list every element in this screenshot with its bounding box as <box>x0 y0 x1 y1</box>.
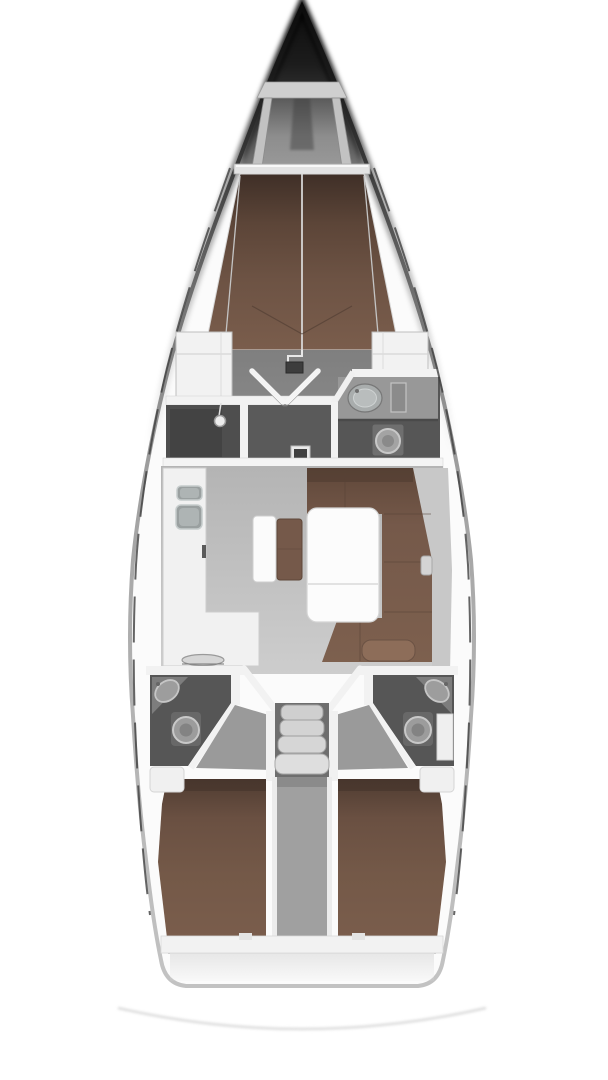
shower-room-inner-shadow <box>170 409 222 457</box>
forward-head <box>331 369 440 462</box>
shower-wall <box>240 403 248 462</box>
galley-sink-large-basin <box>179 508 199 526</box>
starboard-aft-cabin-berth <box>338 779 446 938</box>
port-aft-cabin-berth <box>158 779 266 938</box>
forepeak-center-shadow <box>290 98 314 150</box>
starboard-aft-head-wall-top <box>359 666 458 675</box>
starboard-aft-head-faucet <box>444 682 448 686</box>
settee-pillow <box>362 640 415 661</box>
center-seat <box>253 516 276 582</box>
mast-step <box>286 362 303 373</box>
companionway-steps <box>266 703 338 783</box>
starboard-aft-head-locker <box>437 714 453 760</box>
starboard-aft-head-wall-left <box>364 672 373 705</box>
settee-back-shadow <box>307 468 413 482</box>
step-tread-3 <box>278 736 326 753</box>
divider-edge-starboard <box>327 777 332 939</box>
bow-anchor-locker <box>257 82 347 98</box>
transom-notch-port <box>239 933 252 940</box>
salon-table <box>307 508 379 622</box>
divider-top-shade <box>277 777 327 787</box>
forward-head-faucet <box>355 389 359 393</box>
transom-notch-starboard <box>352 933 365 940</box>
port-aft-head <box>146 666 277 770</box>
deck-locker <box>421 556 432 575</box>
yacht-floorplan-canvas <box>0 0 608 1080</box>
stern-shading <box>170 953 434 981</box>
starboard-aft-toilet-bowl <box>412 724 425 737</box>
shower-head <box>215 416 226 427</box>
forward-head-cabinet <box>391 383 406 412</box>
forward-head-wall-top <box>352 369 440 377</box>
forward-head-wall-left <box>331 402 338 462</box>
port-aft-head-wall-top <box>146 666 245 675</box>
port-aft-toilet-bowl <box>180 724 193 737</box>
forward-head-toilet-bowl <box>382 435 394 447</box>
starboard-cabin-shelf <box>420 767 454 792</box>
oven-handle <box>202 545 206 558</box>
swim-platform-arc <box>118 1008 486 1029</box>
step-wall-port <box>266 711 275 781</box>
salon <box>161 466 452 674</box>
port-cabin-shelf <box>150 767 184 792</box>
transom <box>161 933 443 981</box>
step-tread-1 <box>281 705 323 720</box>
engine-box-divider <box>272 777 332 939</box>
starboard-aft-head <box>327 666 458 770</box>
divider-edge-port <box>272 777 277 939</box>
port-wardrobe <box>176 332 232 402</box>
step-tread-2 <box>280 720 324 736</box>
step-wall-starboard <box>329 711 338 781</box>
mid-bulkhead-wall <box>166 396 338 405</box>
step-tread-4 <box>275 754 329 774</box>
port-aft-head-wall-right <box>231 672 240 705</box>
cabin-corridor <box>248 405 331 462</box>
galley-sink-small-basin <box>180 488 199 498</box>
corridor-doorstep-inner <box>294 449 307 459</box>
yacht-floorplan <box>0 0 608 1080</box>
port-aft-head-faucet <box>156 682 160 686</box>
transom-wall <box>161 936 443 953</box>
